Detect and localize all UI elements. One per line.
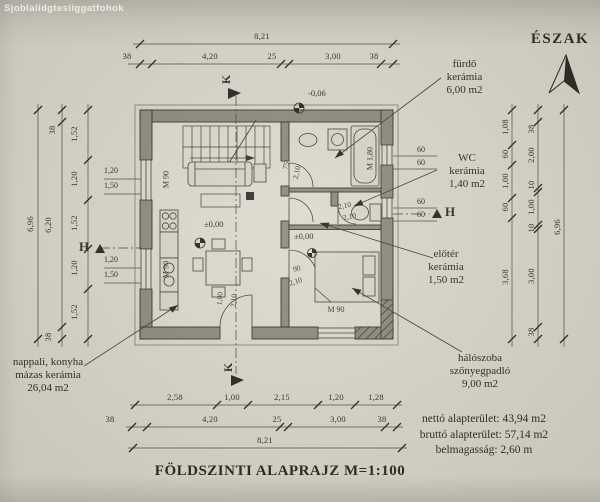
dim-left-inner-1: 1,20: [69, 161, 79, 197]
dim-right-inner-3: 60: [500, 189, 510, 225]
dim-top-3: 3,00: [315, 51, 351, 61]
mark-bed: M 90: [318, 305, 354, 314]
stair-post: [246, 192, 254, 200]
dim-bottom-mid-3: 3,00: [320, 414, 356, 424]
area-summary: nettó alapterület: 43,94 m2 bruttó alapt…: [398, 412, 570, 459]
dim-bottom-total: 8,21: [247, 435, 283, 445]
sofa: [188, 162, 266, 186]
room-bathroom-finish: kerámia: [412, 71, 517, 84]
section-h-triangle-left: [95, 244, 105, 253]
page-title: FÖLDSZINTI ALAPRAJZ M=1:100: [110, 463, 450, 480]
dim-left-outer: 6,96: [25, 206, 35, 242]
room-bedroom-finish: szőnyegpadló: [417, 365, 543, 378]
room-hall-name: előtér: [390, 248, 502, 261]
dim-right-mid-4: 10: [526, 210, 536, 246]
dim-top-4: 38: [356, 51, 392, 61]
dim-bottom-mid-1: 4,20: [192, 414, 228, 424]
sill-right2-a: 60: [406, 197, 436, 206]
room-living-area: 26,04 m2: [0, 382, 96, 395]
summary-net: nettó alapterület: 43,94 m2: [398, 412, 570, 428]
sill-right1-b: 60: [406, 158, 436, 167]
north-label: ÉSZAK: [524, 31, 596, 48]
room-bedroom-area: 9,00 m2: [417, 378, 543, 391]
mark-window-left-2: M 90: [162, 252, 171, 288]
sill-right2-b: 60: [406, 210, 436, 219]
dim-left-mid-2: 38: [43, 319, 53, 355]
washing-machine: [328, 129, 347, 150]
room-label-bedroom: hálószoba szőnyegpadló 9,00 m2: [417, 352, 543, 391]
room-living-finish: mázas kerámia: [0, 369, 96, 382]
section-k-top: K: [219, 75, 234, 84]
dim-top-0: 38: [109, 51, 145, 61]
dim-bottom-inner-2: 2,15: [264, 392, 300, 402]
sill-left2-a: 1,20: [96, 255, 126, 264]
room-bedroom-name: hálószoba: [417, 352, 543, 365]
dim-top-2: 25: [254, 51, 290, 61]
sill-right1-a: 60: [406, 145, 436, 154]
dim-bottom-mid-2: 25: [259, 414, 295, 424]
north-arrow-icon: [549, 55, 579, 93]
watermark: Sjoblalidgtesiiggatfohok: [4, 3, 124, 14]
dim-left-inner-4: 1,52: [69, 294, 79, 330]
mark-window-left-1: M 90: [162, 162, 171, 198]
summary-height: belmagasság: 2,60 m: [398, 443, 570, 459]
dim-bottom-inner-1: 1,00: [214, 392, 250, 402]
room-living-name: nappali, konyha: [0, 356, 96, 369]
section-k-bottom: K: [221, 363, 236, 372]
room-hall-finish: kerámia: [390, 261, 502, 274]
mark-bathtub: M 1,80: [366, 141, 375, 177]
sill-left1-b: 1,50: [96, 181, 126, 190]
dim-left-inner-0: 1,52: [69, 116, 79, 152]
floor-plan-scan: Sjoblalidgtesiiggatfohok ÉSZAK fürdő ker…: [0, 0, 600, 502]
dim-top-total: 8,21: [244, 31, 280, 41]
sill-left2-b: 1,50: [96, 270, 126, 279]
room-bathroom-area: 6,00 m2: [412, 84, 517, 97]
room-label-bathroom: fürdő kerámia 6,00 m2: [412, 58, 517, 97]
dim-right-outer: 6,96: [552, 209, 562, 245]
door-entry-width: 1,00: [215, 292, 225, 306]
bathroom-sink: [299, 134, 317, 147]
door-bath-width: 75: [281, 161, 291, 170]
room-label-living: nappali, konyha mázas kerámia 26,04 m2: [0, 356, 96, 395]
dim-left-inner-2: 1,52: [69, 205, 79, 241]
dim-left-mid-0: 38: [47, 112, 57, 148]
dim-left-inner-3: 1,20: [69, 250, 79, 286]
dim-right-mid-5: 3,00: [526, 258, 536, 294]
dim-right-inner-4: 3,68: [500, 259, 510, 295]
dim-bottom-mid-0: 38: [92, 414, 128, 424]
room-bathroom-name: fürdő: [412, 58, 517, 71]
section-h-right: H: [445, 204, 455, 220]
summary-gross: bruttó alapterület: 57,14 m2: [398, 428, 570, 444]
dim-bottom-inner-4: 1,28: [358, 392, 394, 402]
level-hall: ±0,00: [294, 231, 314, 241]
bed: [315, 252, 379, 302]
dim-right-mid-6: 38: [526, 314, 536, 350]
dim-bottom-inner-3: 1,20: [318, 392, 354, 402]
section-k-flag-bottom: [231, 375, 244, 386]
section-h-left: H: [79, 239, 89, 255]
dim-left-mid-1: 6,20: [43, 207, 53, 243]
room-hall-area: 1,50 m2: [390, 274, 502, 287]
room-label-hall: előtér kerámia 1,50 m2: [390, 248, 502, 287]
dim-bottom-inner-0: 2,58: [157, 392, 193, 402]
level-terrace: -0,06: [308, 88, 326, 98]
sill-left1-a: 1,20: [96, 166, 126, 175]
door-entry-height: 2,10: [229, 294, 239, 308]
dim-bottom-mid-4: 38: [364, 414, 400, 424]
level-living: ±0,00: [204, 219, 224, 229]
dim-top-1: 4,20: [192, 51, 228, 61]
section-k-flag-top: [228, 88, 241, 99]
